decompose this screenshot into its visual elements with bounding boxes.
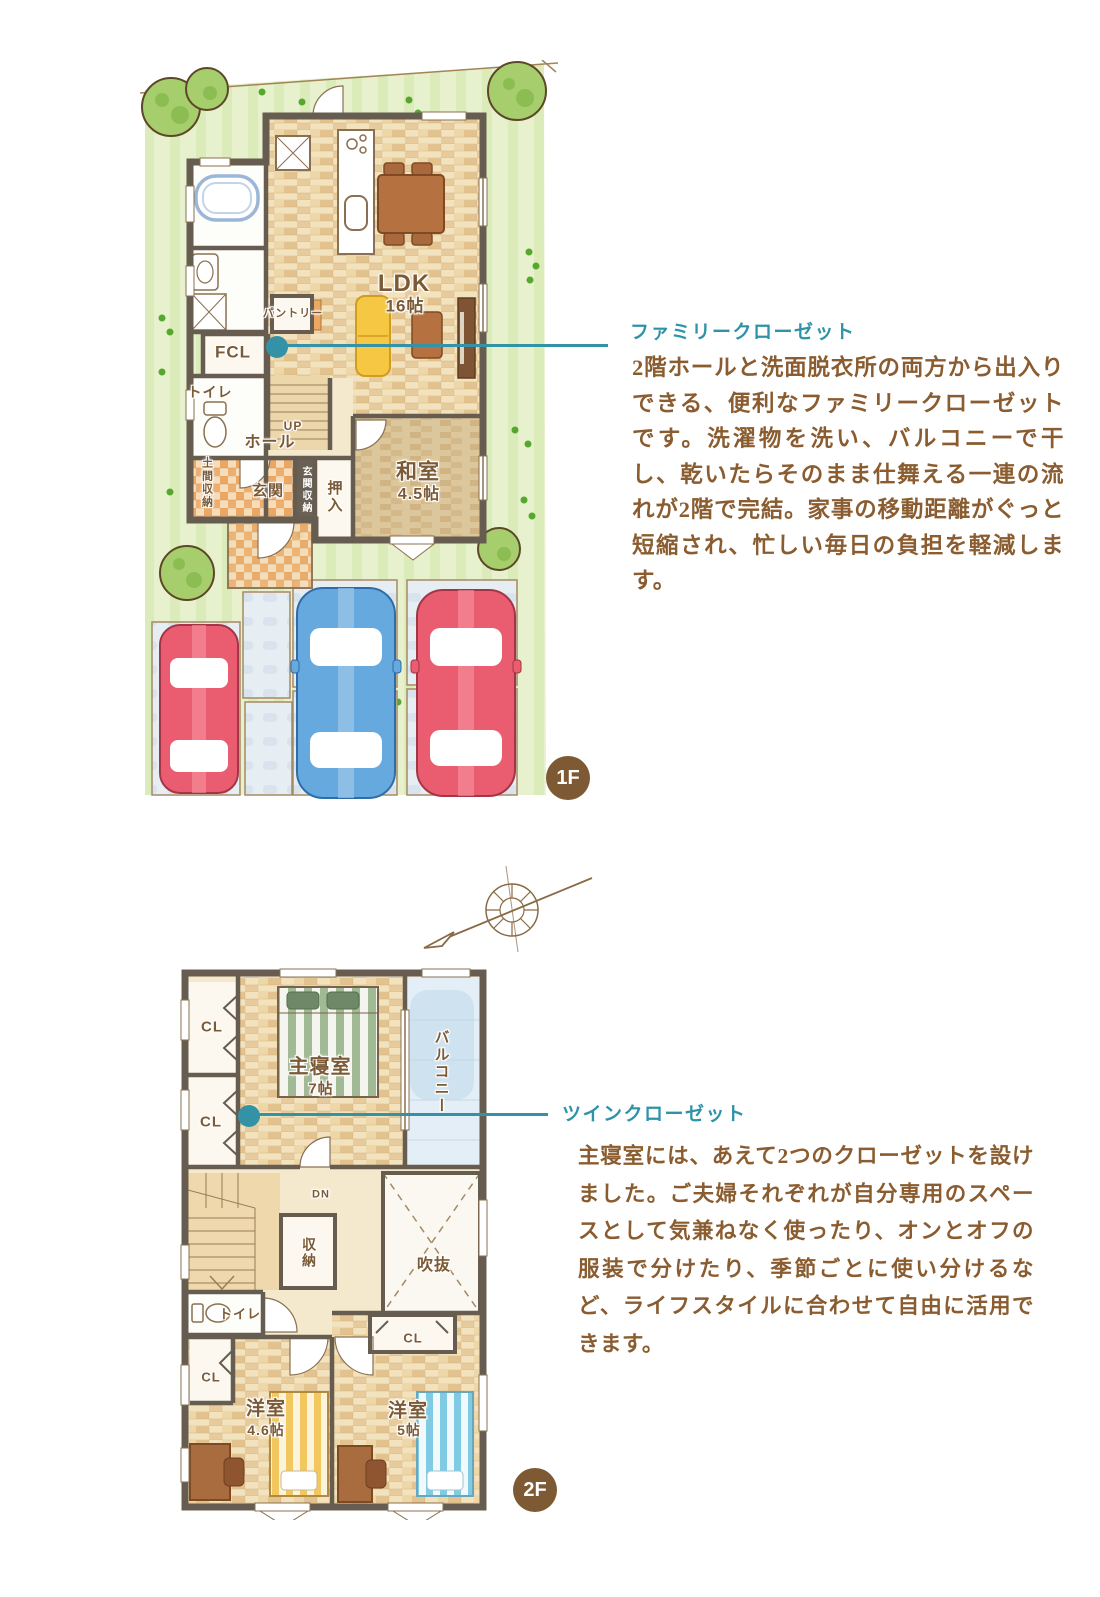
page: LDK 16帖 パントリー FCL トイレ UP ホール 玄関 玄関収納 土間収…: [0, 0, 1100, 1597]
annotation-title-family-closet: ファミリークローゼット: [630, 322, 856, 345]
room-label-master: 主寝室: [289, 1057, 352, 1077]
room-label-west-room1: 洋室: [246, 1400, 286, 1419]
callout-dot-twin-closet: [238, 1105, 260, 1127]
room-label-master-size: 7帖: [308, 1082, 333, 1097]
annotation-body-twin-closet: 主寝室には、あえて2つのクローゼットを設けました。ご夫婦それぞれが自分専用のスペ…: [578, 1138, 1034, 1363]
callout-line-fcl: [277, 344, 608, 347]
callout-dot-fcl: [266, 336, 288, 358]
room-label-cl-c: CL: [201, 1371, 220, 1384]
compass-icon: [420, 848, 600, 958]
floor-2-badge: 2F: [513, 1468, 557, 1512]
room-label-cl-d: CL: [403, 1332, 422, 1345]
callout-line-twin-closet: [249, 1113, 548, 1116]
floor-1-badge: 1F: [546, 756, 590, 800]
annotation-body-family-closet: 2階ホールと洗面脱衣所の両方から出入りできる、便利なファミリークローゼットです。…: [632, 350, 1064, 599]
room-label-west-room1-size: 4.6帖: [247, 1423, 284, 1437]
room-label-west-room2-size: 5帖: [397, 1423, 421, 1437]
room-label-west-room2: 洋室: [388, 1402, 428, 1421]
car-red-right: [411, 590, 521, 796]
room-label-void: 吹抜: [417, 1258, 451, 1274]
room-label-cl-a: CL: [201, 1020, 223, 1035]
room-label-balcony: バルコニー: [434, 1030, 449, 1115]
car-red-left: [160, 625, 238, 793]
car-blue: [291, 588, 401, 798]
room-label-toilet-2f: トイレ: [219, 1308, 261, 1321]
room-label-storage: 収納: [302, 1237, 316, 1269]
cars-layer: [140, 60, 600, 800]
room-label-cl-b: CL: [200, 1115, 222, 1130]
room-label-dn: DN: [312, 1190, 330, 1201]
annotation-title-twin-closet: ツインクローゼット: [562, 1104, 747, 1127]
floor-plan-2f: [160, 950, 580, 1520]
